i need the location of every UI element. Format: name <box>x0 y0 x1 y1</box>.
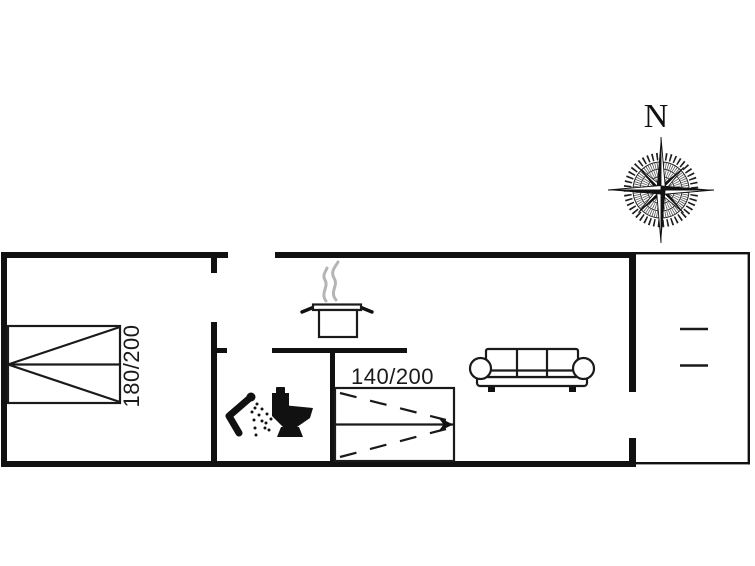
floor-plan-drawing: N <box>0 0 755 566</box>
compass-label: N <box>644 98 669 135</box>
floor-plan: N <box>0 0 755 566</box>
toilet-icon <box>272 387 313 437</box>
terrace-table-icon <box>680 329 708 366</box>
pullout-bed-icon <box>335 388 454 461</box>
cooking-pot-icon <box>302 305 372 338</box>
terrace-walls <box>636 252 750 465</box>
sofa-icon <box>470 349 594 392</box>
pullout-bed-label: 140/200 <box>351 364 434 389</box>
steam-icon <box>324 262 338 301</box>
compass-rose-icon <box>608 137 714 243</box>
shower-icon <box>229 393 273 437</box>
double-bed-icon <box>8 326 120 403</box>
double-bed-label: 180/200 <box>119 324 144 407</box>
